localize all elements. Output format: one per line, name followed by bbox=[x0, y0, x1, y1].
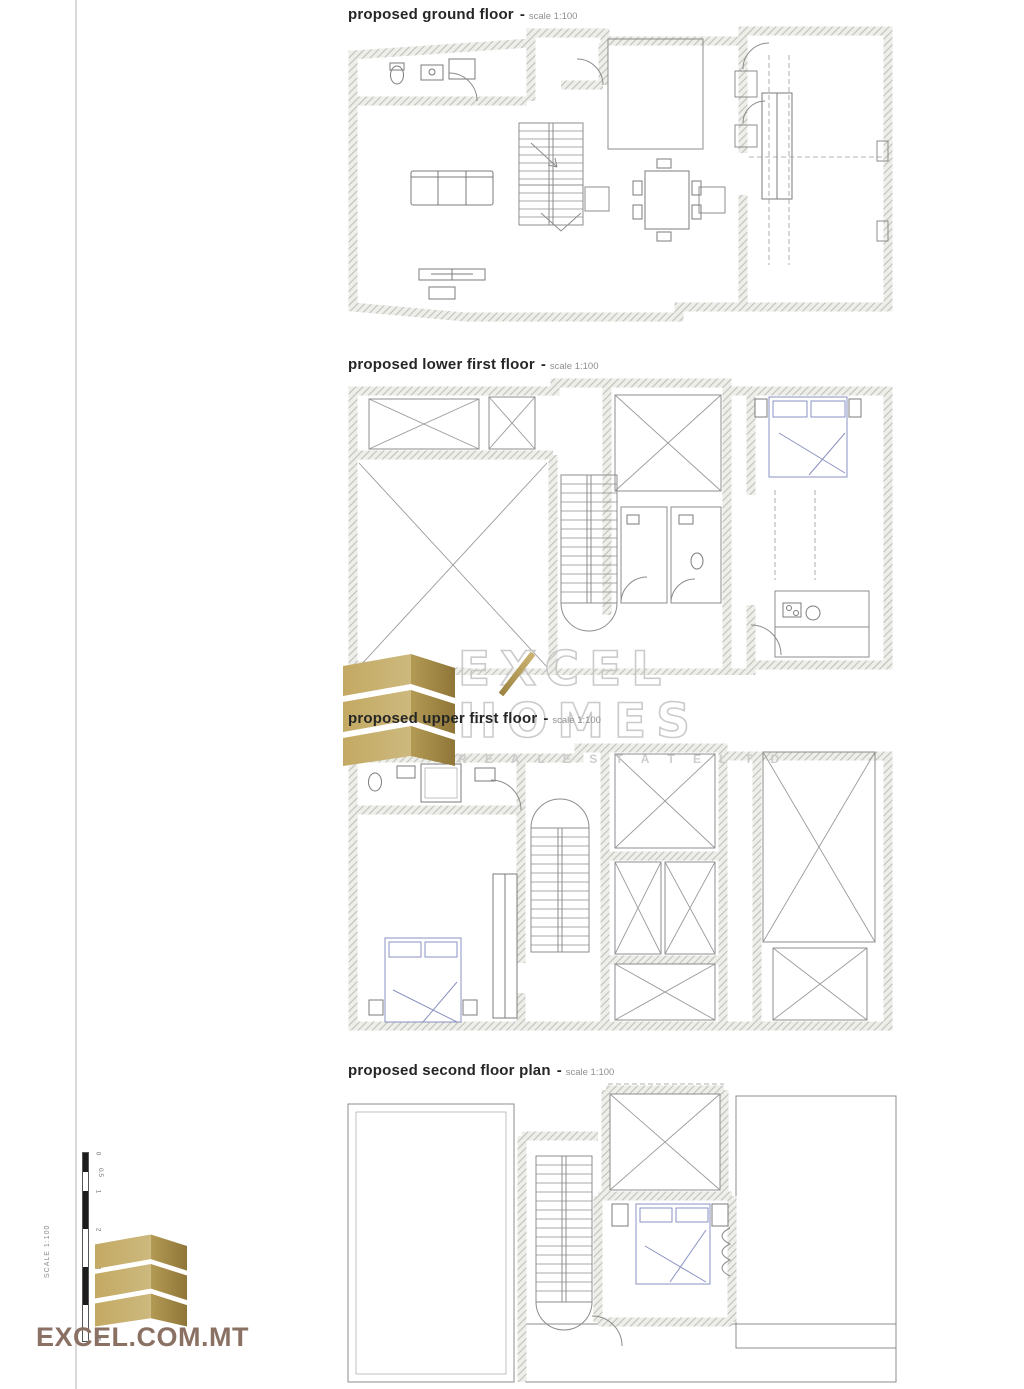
plan-title: proposed ground floor bbox=[348, 6, 514, 23]
graphic-scale-bar bbox=[82, 1152, 89, 1342]
title-separator: - bbox=[543, 710, 548, 727]
lower-first-floor-drawing bbox=[345, 375, 895, 675]
ground-floor-heading: proposed ground floor-scale 1:100 bbox=[348, 6, 577, 24]
plan-title: proposed second floor plan bbox=[348, 1062, 551, 1079]
scale-label: scale 1:100 bbox=[529, 11, 578, 22]
upper-first-floor-heading: proposed upper first floor-scale 1:100 bbox=[348, 710, 601, 728]
scan-edge-line bbox=[75, 0, 77, 1389]
scale-tick: 0 bbox=[94, 1152, 101, 1156]
upper-first-floor-drawing bbox=[345, 738, 895, 1038]
scale-tick: 0.5 bbox=[97, 1168, 104, 1177]
second-floor-plan bbox=[340, 1078, 905, 1389]
second-floor-drawing bbox=[340, 1078, 905, 1388]
watermark-text: EXCEL HOMES R E A L E S T A T E L T D bbox=[458, 644, 787, 766]
scale-tick: 1 bbox=[94, 1190, 101, 1194]
scale-label: scale 1:100 bbox=[566, 1067, 615, 1078]
watermark-tagline: R E A L E S T A T E L T D bbox=[458, 752, 787, 766]
second-floor-heading: proposed second floor plan-scale 1:100 bbox=[348, 1062, 614, 1080]
ground-floor-plan bbox=[345, 25, 895, 330]
plan-title: proposed upper first floor bbox=[348, 710, 537, 727]
plan-title: proposed lower first floor bbox=[348, 356, 535, 373]
scalebar-caption: SCALE 1:100 bbox=[44, 1158, 51, 1278]
lower-first-floor-heading: proposed lower first floor-scale 1:100 bbox=[348, 356, 598, 374]
scale-label: scale 1:100 bbox=[552, 715, 601, 726]
lower-first-floor-plan bbox=[345, 375, 895, 680]
scale-label: scale 1:100 bbox=[550, 361, 599, 372]
floorplan-document-page: proposed ground floor-scale 1:100 bbox=[0, 0, 1024, 1389]
excel-homes-footer-logo-icon bbox=[95, 1228, 187, 1333]
ground-floor-drawing bbox=[345, 25, 895, 325]
title-separator: - bbox=[520, 6, 525, 23]
title-separator: - bbox=[557, 1062, 562, 1079]
title-separator: - bbox=[541, 356, 546, 373]
website-text: EXCEL.COM.MT bbox=[36, 1322, 249, 1353]
upper-first-floor-plan bbox=[345, 738, 895, 1043]
